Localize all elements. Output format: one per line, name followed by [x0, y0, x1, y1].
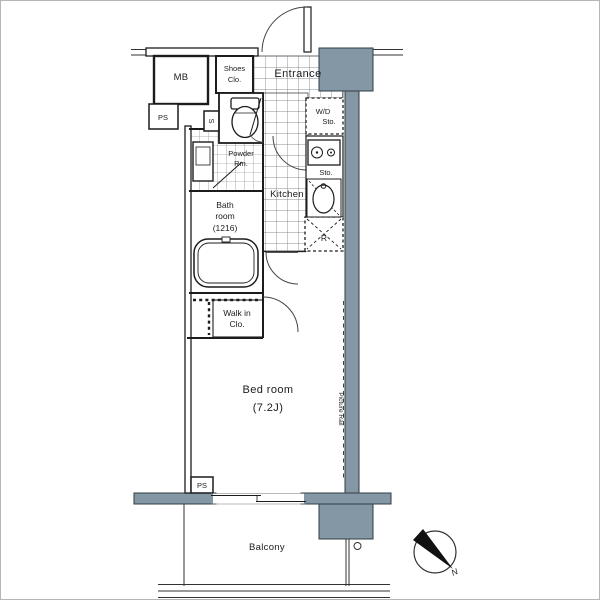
bedroom-label-2: (7.2J) [253, 402, 284, 414]
bathroom-label-3: (1216) [213, 223, 238, 233]
kitchen-sink [307, 179, 341, 217]
entrance-door [262, 7, 311, 52]
bathroom-label-2: room [215, 211, 234, 221]
wall-left [185, 126, 191, 493]
wd-storage-label-1: W/D [316, 107, 331, 116]
shoes-closet-label-1: Shoes [224, 64, 246, 73]
powder-room-label-1: Powder [228, 149, 254, 158]
wall-bottom-right [301, 493, 391, 504]
pipe-space-top-label: PS [158, 113, 168, 122]
bathtub [194, 237, 258, 287]
shoes-closet-label-2: Clo. [228, 75, 241, 84]
kitchen-tile-floor [263, 93, 308, 251]
kitchen-label: Kitchen [270, 189, 304, 200]
floorplan-image: MB Shoes Clo. Entrance PS S W/D Sto. Pow… [0, 0, 600, 600]
stove [308, 140, 340, 165]
entrance-label: Entrance [274, 68, 321, 80]
balcony-sliding-window [211, 494, 306, 505]
powder-room-label-2: Rm. [234, 159, 248, 168]
picture-rail-label: Picture Rail [337, 392, 344, 426]
bathroom-label-1: Bath [216, 200, 234, 210]
kitchen-bedroom-door-arc [266, 252, 298, 284]
bath-faucet [222, 237, 230, 242]
walkin-closet-door-arc [263, 297, 298, 332]
walkin-closet-label-2: Clo. [229, 319, 244, 329]
kitchen-bedroom-door [266, 252, 298, 284]
balcony-label: Balcony [249, 542, 285, 553]
pillar-top-right [319, 48, 373, 91]
walkin-closet-label-1: Walk in [223, 308, 251, 318]
compass-north-label: N [450, 566, 461, 578]
switch-box-label: S [207, 118, 216, 123]
walkin-closet-details [193, 300, 263, 337]
wd-storage-label-2: Sto. [322, 117, 335, 126]
compass: N [413, 529, 460, 578]
meter-box-label: MB [174, 72, 189, 83]
wall-bottom-left [134, 493, 216, 504]
washer-dryer-storage-box [306, 98, 343, 134]
wall-right [345, 91, 359, 496]
balcony-drain [354, 543, 361, 550]
floorplan-svg: MB Shoes Clo. Entrance PS S W/D Sto. Pow… [1, 1, 599, 599]
bedroom-label-1: Bed room [243, 384, 294, 396]
kitchen-storage-label: Sto. [319, 168, 332, 177]
entrance-door-arc [262, 7, 307, 52]
refrigerator-label: R [321, 233, 327, 243]
pipe-space-bottom-label: PS [197, 481, 207, 490]
powder-vanity-inner [196, 147, 210, 165]
